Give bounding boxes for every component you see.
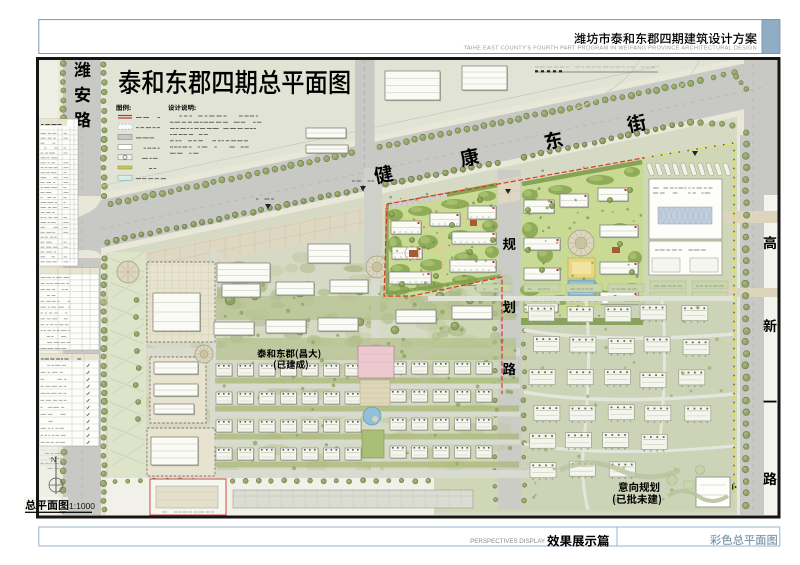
svg-text:TAIHE EAST COUNTY'S FOURTH PAR: TAIHE EAST COUNTY'S FOURTH PART PROGRAM … (464, 46, 757, 52)
svg-text:1:1000: 1:1000 (69, 501, 95, 511)
svg-text:PERSPECTIVES DISPLAY: PERSPECTIVES DISPLAY (470, 538, 545, 545)
